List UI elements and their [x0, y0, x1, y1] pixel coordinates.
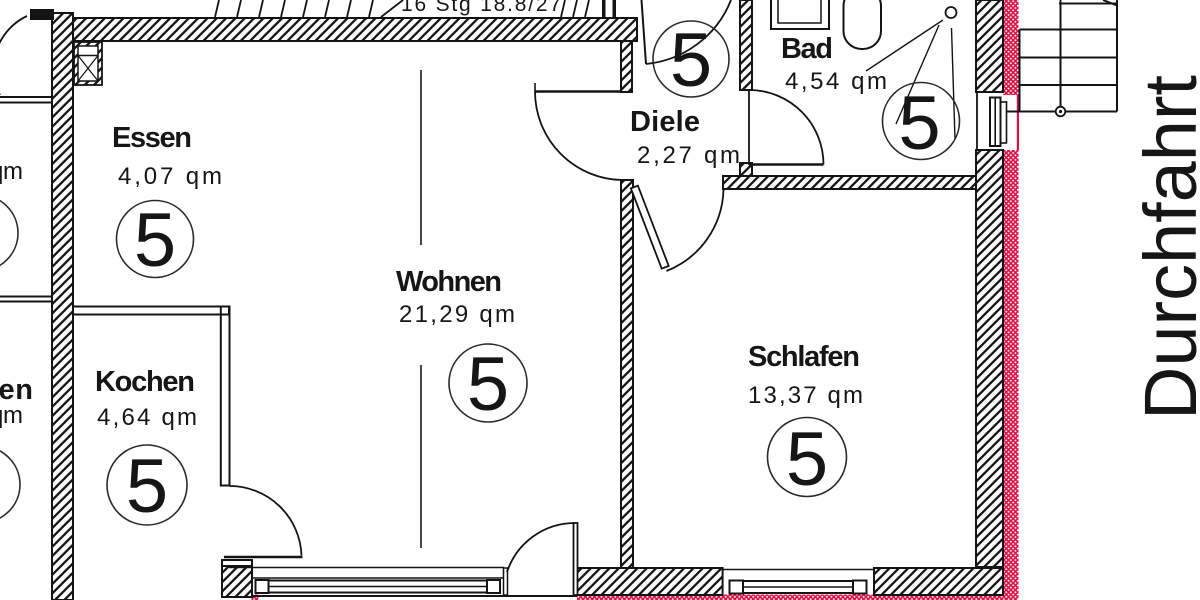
svg-text:Diele: Diele [630, 106, 700, 138]
svg-text:4,64 qm: 4,64 qm [97, 404, 197, 431]
svg-text:qm: qm [0, 158, 23, 185]
svg-text:Bad: Bad [781, 33, 833, 65]
svg-text:Wohnen: Wohnen [396, 266, 502, 298]
svg-text:Schlafen: Schlafen [748, 341, 860, 373]
svg-text:5: 5 [134, 198, 176, 283]
svg-text:5: 5 [467, 342, 509, 427]
svg-text:4,07 qm: 4,07 qm [118, 163, 222, 190]
svg-text:5: 5 [670, 18, 712, 103]
svg-text:2,27 qm: 2,27 qm [637, 142, 740, 169]
svg-text:16 Stg 18.8/27: 16 Stg 18.8/27 [401, 0, 561, 16]
svg-text:5: 5 [786, 417, 828, 502]
svg-text:Kochen: Kochen [95, 366, 195, 398]
svg-text:qm: qm [0, 402, 23, 429]
svg-text:Essen: Essen [112, 122, 192, 154]
svg-text:13,37 qm: 13,37 qm [748, 382, 863, 409]
svg-text:4,54 qm: 4,54 qm [785, 68, 887, 95]
svg-text:5: 5 [898, 81, 940, 166]
svg-text:21,29 qm: 21,29 qm [399, 301, 515, 328]
svg-text:5: 5 [126, 444, 168, 529]
svg-text:Durchfahrt: Durchfahrt [1129, 75, 1200, 420]
